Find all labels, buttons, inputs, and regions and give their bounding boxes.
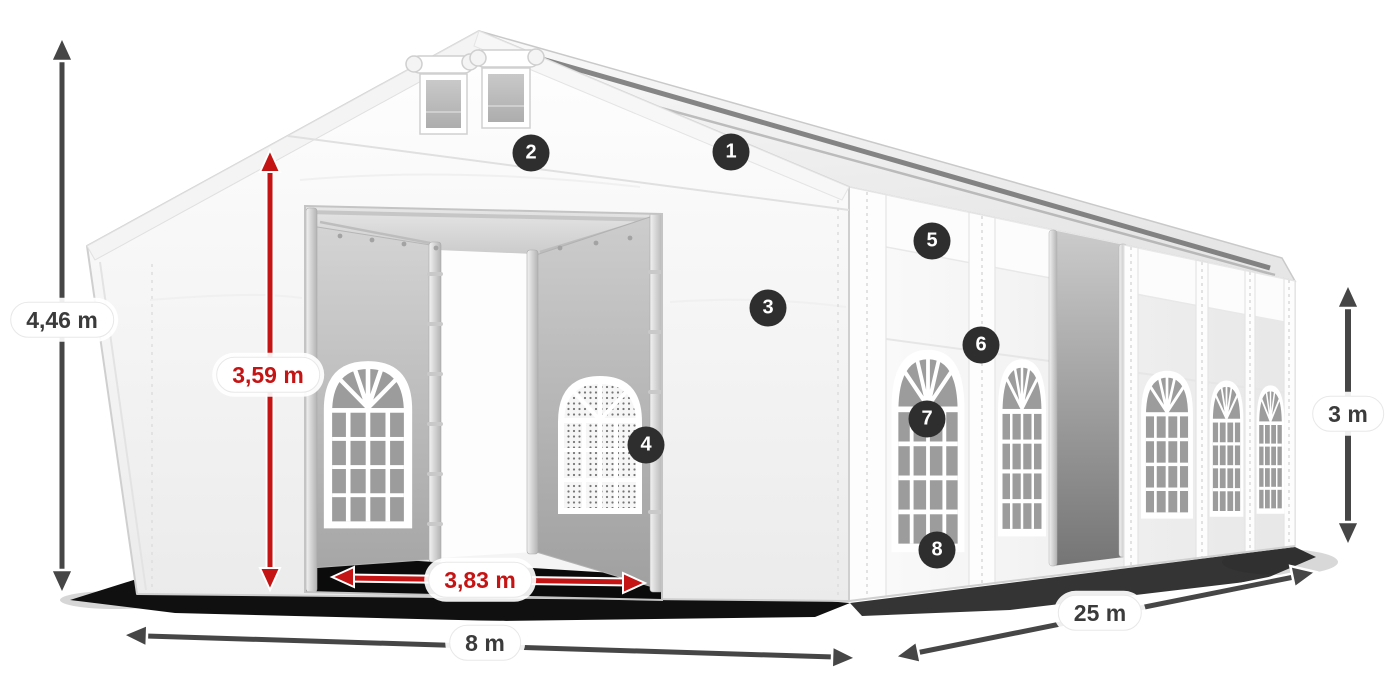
dimension-length-label: 25 m (1058, 595, 1142, 631)
side-window-2 (998, 359, 1046, 536)
right-door-flap (527, 215, 656, 588)
feature-badge-6[interactable]: 6 (963, 327, 1000, 364)
tent-dimension-diagram: 4,46 m 3,59 m 3,83 m 8 m 25 m 3 m 1 2 3 … (0, 0, 1400, 700)
dimension-side-height-label: 3 m (1312, 396, 1384, 432)
feature-badge-1[interactable]: 1 (713, 134, 750, 171)
feature-badge-7[interactable]: 7 (909, 401, 946, 438)
side-window-4 (1210, 381, 1244, 517)
entrance-passage (437, 250, 534, 558)
feature-badge-5[interactable]: 5 (914, 223, 951, 260)
side-window-5 (1257, 385, 1285, 513)
side-window-1 (892, 350, 965, 552)
feature-badge-2[interactable]: 2 (513, 135, 550, 172)
side-window-3 (1141, 371, 1193, 519)
dimension-entrance-width-label: 3,83 m (428, 562, 532, 598)
left-jamb-post (306, 208, 317, 592)
tent-illustration (0, 0, 1400, 700)
feature-badge-4[interactable]: 4 (628, 427, 665, 464)
dimension-total-height-label: 4,46 m (10, 302, 114, 338)
side-entrance-opening (1049, 230, 1127, 566)
left-door-flap (311, 226, 443, 568)
feature-badge-3[interactable]: 3 (750, 290, 787, 327)
left-flap-window (324, 361, 412, 528)
front-entrance-opening (305, 206, 665, 600)
dimension-width-label: 8 m (449, 625, 521, 661)
dimension-inner-height-label: 3,59 m (216, 357, 320, 393)
feature-badge-8[interactable]: 8 (919, 532, 956, 569)
